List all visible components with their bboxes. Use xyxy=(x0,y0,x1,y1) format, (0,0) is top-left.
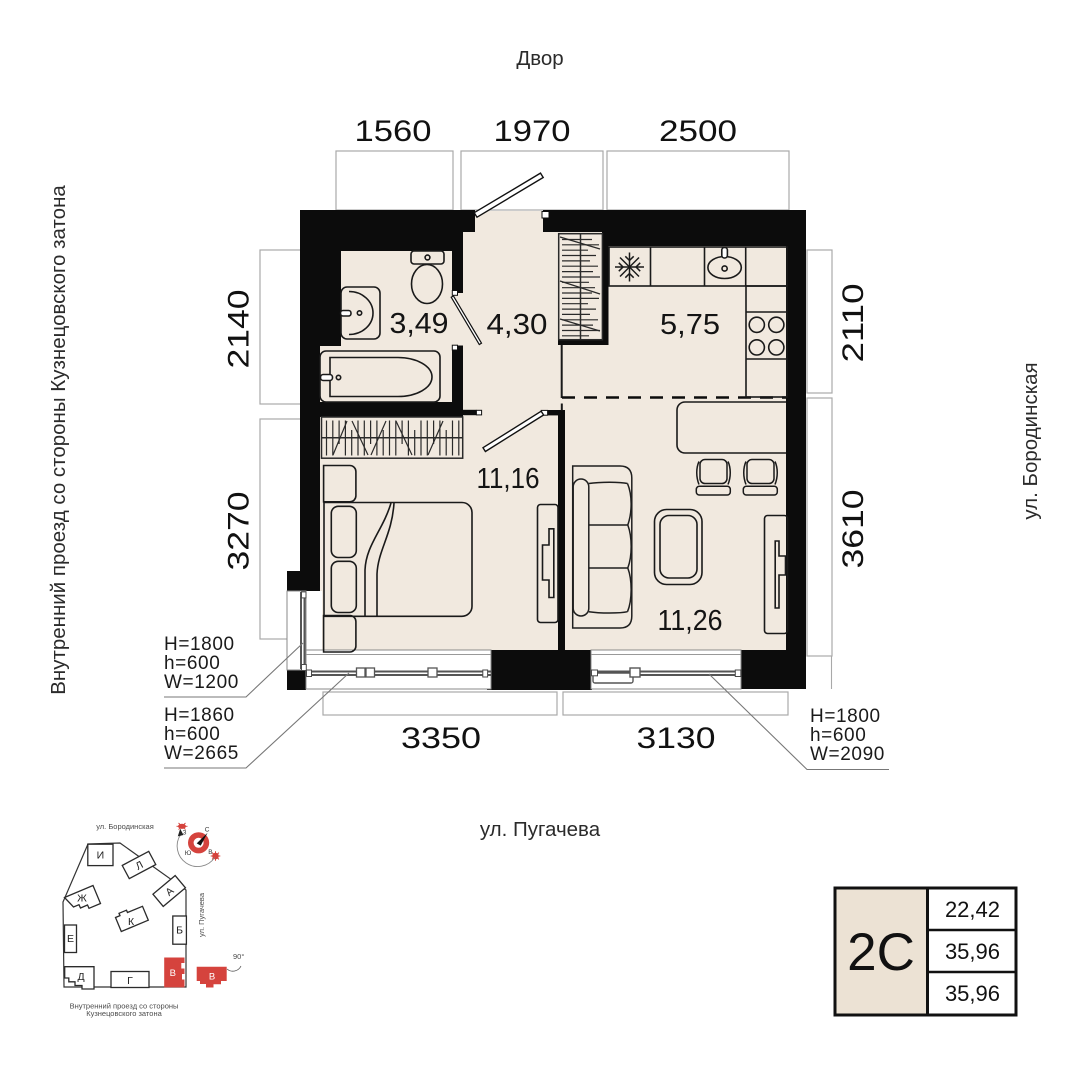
svg-text:4,30: 4,30 xyxy=(487,309,548,341)
svg-text:3610: 3610 xyxy=(837,490,870,569)
svg-text:11,16: 11,16 xyxy=(477,463,540,495)
svg-text:В: В xyxy=(170,968,176,979)
svg-text:5,75: 5,75 xyxy=(660,309,720,341)
svg-text:1560: 1560 xyxy=(355,115,432,148)
svg-text:3130: 3130 xyxy=(637,722,716,755)
svg-text:И: И xyxy=(97,850,105,862)
svg-text:В: В xyxy=(209,972,215,983)
svg-text:11,26: 11,26 xyxy=(658,605,723,637)
svg-text:h=600: h=600 xyxy=(164,724,220,745)
svg-text:2C: 2C xyxy=(847,923,915,982)
svg-text:Внутренний проезд со стороны К: Внутренний проезд со стороны Кузнецовско… xyxy=(47,185,70,695)
svg-text:Двор: Двор xyxy=(516,47,563,70)
svg-text:Б: Б xyxy=(176,925,183,937)
svg-text:22,42: 22,42 xyxy=(945,897,1000,922)
svg-text:З: З xyxy=(183,830,187,837)
svg-text:ул. Пугачева: ул. Пугачева xyxy=(197,892,206,937)
svg-text:W=2665: W=2665 xyxy=(164,743,239,764)
svg-text:H=1800: H=1800 xyxy=(810,706,881,727)
svg-text:ул. Бородинская: ул. Бородинская xyxy=(1019,362,1042,519)
svg-text:90°: 90° xyxy=(233,952,244,961)
svg-text:Е: Е xyxy=(67,933,74,945)
svg-text:Кузнецовского затона: Кузнецовского затона xyxy=(86,1009,162,1018)
svg-text:Ю: Ю xyxy=(185,850,192,857)
svg-text:W=1200: W=1200 xyxy=(164,672,239,693)
svg-text:H=1860: H=1860 xyxy=(164,705,235,726)
svg-text:3270: 3270 xyxy=(223,492,256,571)
svg-text:h=600: h=600 xyxy=(810,725,866,746)
svg-text:К: К xyxy=(128,916,135,928)
svg-text:В: В xyxy=(208,849,212,856)
svg-text:2140: 2140 xyxy=(223,290,256,369)
svg-text:3350: 3350 xyxy=(401,722,481,755)
svg-text:2110: 2110 xyxy=(837,284,870,363)
svg-text:35,96: 35,96 xyxy=(945,939,1000,964)
svg-text:Г: Г xyxy=(127,975,133,987)
svg-text:3,49: 3,49 xyxy=(390,308,449,340)
svg-text:С: С xyxy=(205,827,210,834)
svg-text:H=1800: H=1800 xyxy=(164,634,235,655)
svg-text:ул. Бородинская: ул. Бородинская xyxy=(96,822,154,831)
svg-text:Д: Д xyxy=(77,971,84,983)
svg-text:2500: 2500 xyxy=(659,115,737,148)
svg-text:1970: 1970 xyxy=(494,115,571,148)
svg-text:h=600: h=600 xyxy=(164,653,220,674)
svg-text:Ж: Ж xyxy=(77,893,87,905)
svg-text:ул. Пугачева: ул. Пугачева xyxy=(480,818,601,841)
svg-text:W=2090: W=2090 xyxy=(810,744,885,765)
svg-text:35,96: 35,96 xyxy=(945,981,1000,1006)
